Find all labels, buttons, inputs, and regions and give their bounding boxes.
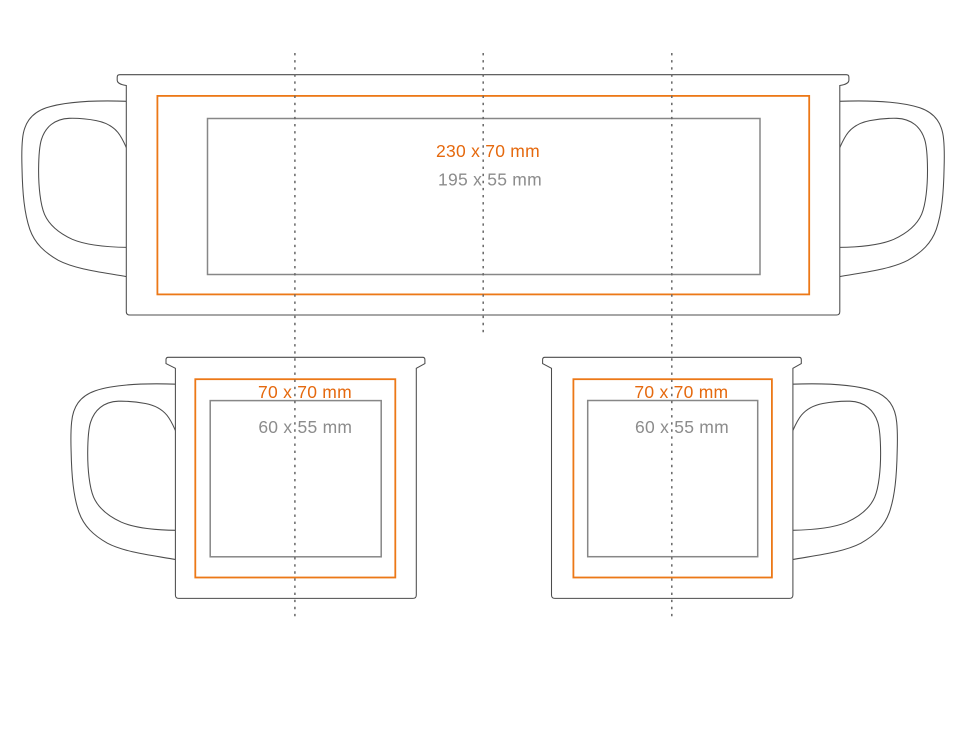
svg-text:70 x 70 mm: 70 x 70 mm [634, 382, 728, 402]
svg-text:195 x 55 mm: 195 x 55 mm [438, 170, 542, 190]
svg-text:70 x 70 mm: 70 x 70 mm [258, 382, 352, 402]
svg-text:60 x 55 mm: 60 x 55 mm [635, 417, 729, 437]
svg-text:230 x 70 mm: 230 x 70 mm [436, 141, 540, 161]
svg-text:60 x 55 mm: 60 x 55 mm [258, 417, 352, 437]
